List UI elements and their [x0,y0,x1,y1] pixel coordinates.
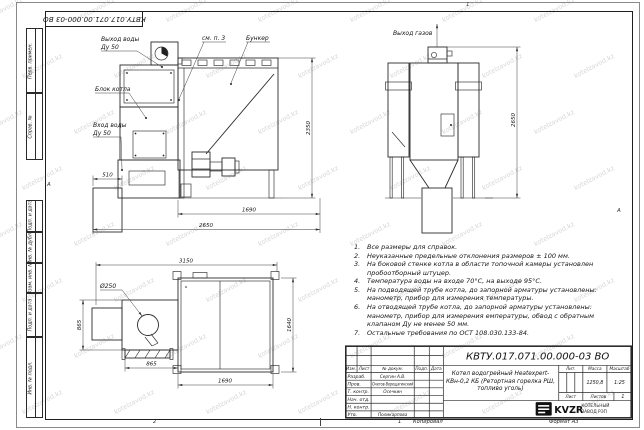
see-note-label: см. п. 3 [202,35,225,42]
zone-marker-left: А [47,182,51,188]
plan-boiler-block [122,300,178,350]
role-nachotd: Нач. отд. [348,397,370,403]
scale-label: Масштаб [609,366,629,371]
ash-pit-box [422,188,452,233]
plan-ash-box [92,308,122,340]
water-inlet-dn: Ду 50 [92,130,111,137]
dim-1640: 1640 [287,318,293,332]
zone-marker-bottom-num: 1 [398,419,401,425]
logo-caption-1: КОТЕЛЬНЫЙ [581,402,609,409]
dim-510: 510 [102,173,113,179]
role-utv: Утв. [348,412,358,418]
margin-label: Справ. № [29,115,34,138]
note-item: 2.Неуказанные предельные отклонения разм… [352,252,628,261]
left-cyclone [388,63,409,157]
zone-marker-right: А [617,208,621,214]
dim-2650: 2650 [199,223,213,229]
margin-label: Перв. примен. [29,42,34,78]
water-outlet-label: Выход воды [101,36,139,43]
rear-view: Выход газов [385,14,535,239]
side-view-dimensions: 510 1690 2650 2350 [93,58,320,234]
col-dokum: № докум. [381,366,403,371]
note-item: 6.На отводящей трубе котла, до запорной … [352,303,628,329]
plan-view: Ø250 3150 865 865 1690 1640 [62,255,307,405]
dim-865-left: 865 [77,319,83,330]
lit-label: Лит. [565,366,576,371]
margin-box-inv-dubl: Инв. № дубл. [26,232,43,263]
auger-motor [222,158,235,176]
furnace-section [118,160,180,198]
rear-center-column [410,63,458,160]
col-podp: Подп. [415,366,428,371]
side-view: 510 1690 2650 2350 Выход воды Ду 50 Блок… [85,28,327,236]
mass-value: 1250,8 [586,380,603,386]
doc-number-stamp: КВТУ.017.071.00.000-03 ВО [45,11,143,27]
hopper-leg [269,170,274,198]
col-izm: Изм. [346,366,356,371]
name-tkontr: Осечкин [383,389,402,394]
title-block-doc-number: КВТУ.017.071.00.000-03 ВО [466,351,609,362]
note-item: 3.На боковой стенке котла в области топо… [352,260,628,277]
margin-box-podp-data-1: Подп. и дата [26,200,43,232]
boiler-mid-body [120,107,178,160]
furnace-window [129,171,165,185]
doc-number-stamp-text: КВТУ.017.071.00.000-03 ВО [43,15,146,24]
kvzr-logo: KVZR КОТЕЛЬНЫЙ ЗАВОД РЭП [536,402,610,416]
diameter-label: Ø250 [99,283,116,290]
boiler-upper-door [124,70,174,103]
hopper-label: Бункер [246,35,269,42]
name-utv: Поликарпова [378,412,408,417]
margin-box-perv-primen: Перв. примен. [26,28,43,93]
sheet-label: Лист [564,394,576,399]
hopper-body [178,58,278,170]
rear-boiler-body [385,47,493,233]
dim-1690-plan: 1690 [218,379,232,385]
boiler-mid-door [133,131,166,158]
leg [390,157,392,198]
role-razrab: Разраб. [348,374,366,380]
format-label: Формат А3 [549,419,579,425]
zone-marker-bottom: 2 [153,419,156,425]
note-item: 7.Остальные требования по ОСТ 108.030.13… [352,329,628,338]
margin-label: Инв. № подл. [29,361,34,394]
hopper [173,58,282,198]
logo-caption-2: ЗАВОД РЭП [581,409,607,415]
dim-2650-rear: 2650 [511,113,517,127]
margin-box-podp-data-2: Подп. и дата [26,293,43,337]
rear-door [441,114,454,136]
note-item: 5.На подводящей трубе котла, до запорной… [352,286,628,303]
mass-label: Масса [588,366,602,371]
margin-label: Подп. и дата [29,200,34,233]
logo-text: KVZR [554,405,584,416]
zone-marker-top: 1 [466,2,470,8]
hopper-chute [206,74,274,154]
fan-blade [162,47,168,57]
support-foot [181,184,191,197]
gas-outlet-label: Выход газов [393,30,433,37]
water-outlet-dn: Ду 50 [100,44,119,51]
leg [461,157,463,198]
margin-box-inv-podl: Инв. № подл. [26,337,43,418]
dim-1690: 1690 [242,208,256,214]
leg [402,157,404,198]
boiler-block-label: Блок котла [95,86,131,93]
water-inlet-label: Вход воды [93,122,127,129]
dim-2350: 2350 [306,121,312,135]
margin-label: Подп. и дата [29,299,34,332]
copied-label: Копировал [413,419,443,425]
plan-chimney-circle [138,315,159,336]
name-prov: Онегов-Верещагинский [372,381,413,386]
right-cyclone [458,63,479,157]
dim-865-bottom: 865 [146,362,157,368]
note-item: 1.Все размеры для справок. [352,243,628,252]
drawing-sheet: kotelzavod.kzkotelzavod.kzkotelzavod.kzk… [0,0,644,430]
sheets-label: Листов [590,394,607,399]
note-item: 4.Температура воды на входе 70°С, на вых… [352,277,628,286]
col-data: Дата [430,366,442,371]
margin-box-vzam-inv: Взам. инв. № [26,263,43,293]
technical-notes: 1.Все размеры для справок. 2.Неуказанные… [352,243,628,337]
plan-hopper [178,278,273,372]
role-nkontr: Н. контр. [348,404,370,410]
plan-labels: Ø250 [99,283,142,316]
role-tkontr: Т. контр. [348,389,369,395]
leg [473,157,475,198]
scale-value: 1:25 [614,380,625,386]
role-prov: Пров. [348,381,361,387]
name-razrab: Сергин А.В. [380,374,406,379]
sheets-value: 1 [621,394,624,400]
margin-label: Взам. инв. № [29,262,34,295]
col-list: Лист [358,366,370,371]
side-view-labels: Выход воды Ду 50 Блок котла Вход воды Ду… [92,35,270,171]
product-title: Котел водогрейный Heatexpert-КВн-0,2 КБ … [444,366,557,399]
margin-label: Инв. № дубл. [29,231,34,264]
chimney-stub [428,47,447,63]
margin-box-sprav-n: Справ. № [26,93,43,160]
auger-gearbox [192,152,210,177]
dim-3150: 3150 [179,259,193,265]
plan-geometry [92,272,279,374]
